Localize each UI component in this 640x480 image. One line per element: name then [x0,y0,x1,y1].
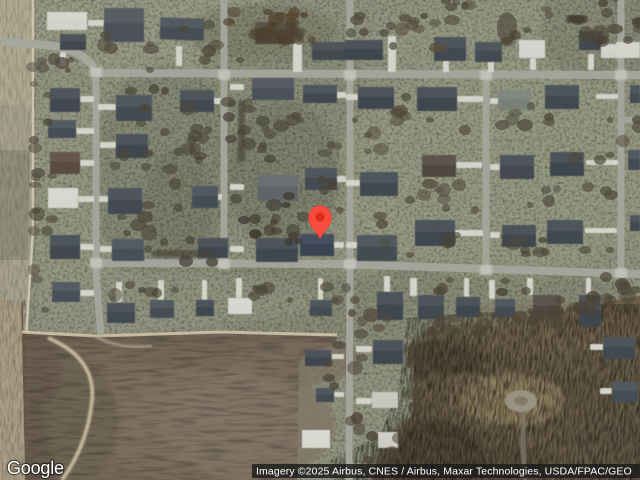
svg-text:Google: Google [7,458,64,478]
svg-text:Imagery ©2025 Airbus, CNES / A: Imagery ©2025 Airbus, CNES / Airbus, Max… [256,466,632,478]
